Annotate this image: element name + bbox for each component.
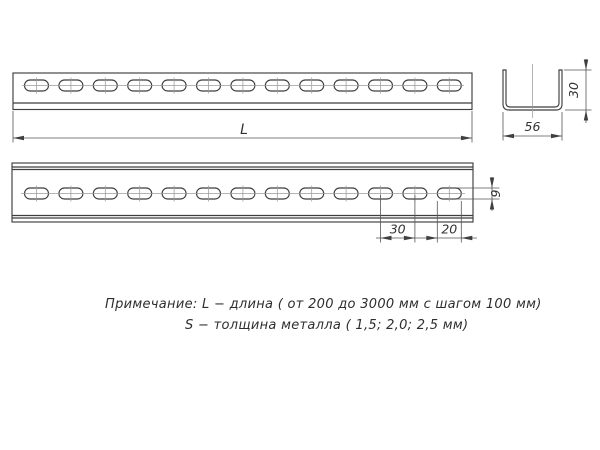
arrowhead-outside-right xyxy=(461,236,472,240)
length-dimension-label: L xyxy=(240,122,248,138)
section-height-value: 30 xyxy=(566,82,581,98)
arrowhead-right xyxy=(461,136,472,140)
arrowhead-left xyxy=(503,134,514,138)
hole-length-value: 20 xyxy=(441,222,457,237)
dimension-section-height: 30 xyxy=(564,59,592,123)
dimension-length: L xyxy=(13,111,472,143)
note-line-2: S − толщина металла ( 1,5; 2,0; 2,5 мм) xyxy=(185,318,468,333)
view-top xyxy=(13,73,472,110)
drawing-sheet: L 56 30 xyxy=(0,0,600,450)
note: Примечание: L − длина ( от 200 до 3000 м… xyxy=(105,297,542,333)
dimension-hole-width: 9 xyxy=(450,177,503,211)
arrowhead-outside-left xyxy=(426,236,437,240)
note-line-1: Примечание: L − длина ( от 200 до 3000 м… xyxy=(105,297,542,312)
arrowhead-bottom xyxy=(490,199,494,210)
hole-width-value: 9 xyxy=(488,189,503,197)
view-section: 56 30 xyxy=(503,59,592,141)
hole-pitch-value: 30 xyxy=(390,222,406,237)
arrowhead-top xyxy=(584,60,588,71)
section-width-value: 56 xyxy=(525,119,541,134)
dimension-pitch-and-slot: 30 20 xyxy=(376,195,477,243)
technical-drawing: L 56 30 xyxy=(0,0,600,450)
arrowhead-bottom xyxy=(584,110,588,121)
arrowhead-left xyxy=(13,136,24,140)
view-front xyxy=(12,163,473,222)
arrowhead-top xyxy=(490,178,494,189)
arrowhead-right xyxy=(551,134,562,138)
view-front-outline xyxy=(12,163,473,222)
